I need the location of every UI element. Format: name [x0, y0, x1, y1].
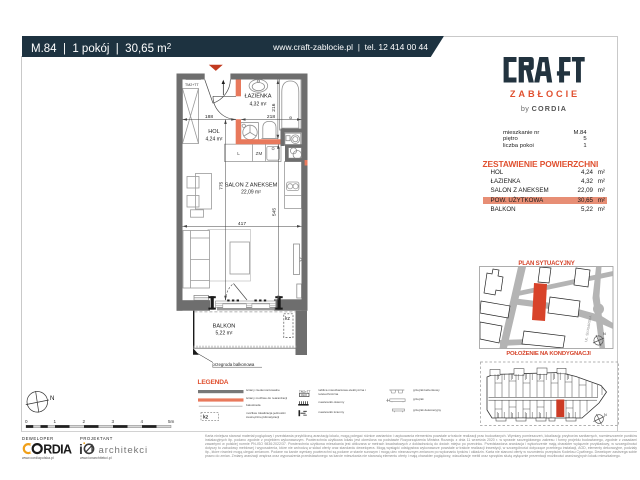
- svg-text:kz: kz: [203, 415, 209, 421]
- svg-text:4: 4: [141, 419, 144, 424]
- svg-text:5,22 m²: 5,22 m²: [216, 330, 233, 336]
- svg-text:775: 775: [219, 181, 225, 189]
- svg-text:N: N: [603, 332, 606, 336]
- svg-text:ŁAZIENKA: ŁAZIENKA: [244, 94, 271, 100]
- svg-text:BALKON: BALKON: [213, 323, 236, 329]
- svg-text:N: N: [604, 413, 607, 417]
- svg-text:3: 3: [112, 419, 115, 424]
- svg-text:5m: 5m: [168, 419, 175, 424]
- svg-text:417: 417: [238, 221, 246, 227]
- svg-text:architekci: architekci: [99, 445, 149, 456]
- svg-text:1: 1: [54, 419, 57, 424]
- svg-text:2: 2: [83, 419, 86, 424]
- svg-text:22,09 m²: 22,09 m²: [241, 190, 261, 196]
- svg-text:przegroda balkonowa: przegroda balkonowa: [212, 362, 255, 367]
- svg-text:N: N: [50, 395, 54, 402]
- svg-text:0: 0: [25, 419, 28, 424]
- svg-text:4,32 m²: 4,32 m²: [250, 102, 267, 108]
- svg-text:i: i: [79, 441, 83, 457]
- svg-text:545: 545: [272, 208, 278, 216]
- svg-text:HOL: HOL: [208, 129, 220, 135]
- svg-text:SALON Z ANEKSEM: SALON Z ANEKSEM: [225, 183, 278, 189]
- svg-text:TM2+TT: TM2+TT: [185, 83, 199, 87]
- svg-text:L: L: [237, 151, 240, 156]
- svg-text:4,24 m²: 4,24 m²: [206, 136, 223, 142]
- svg-text:216: 216: [271, 103, 277, 111]
- svg-text:188: 188: [205, 114, 213, 120]
- svg-text:ZM: ZM: [256, 151, 263, 156]
- svg-text:kz: kz: [285, 316, 291, 322]
- svg-text:218: 218: [267, 114, 275, 120]
- svg-text:RDIA: RDIA: [43, 443, 72, 457]
